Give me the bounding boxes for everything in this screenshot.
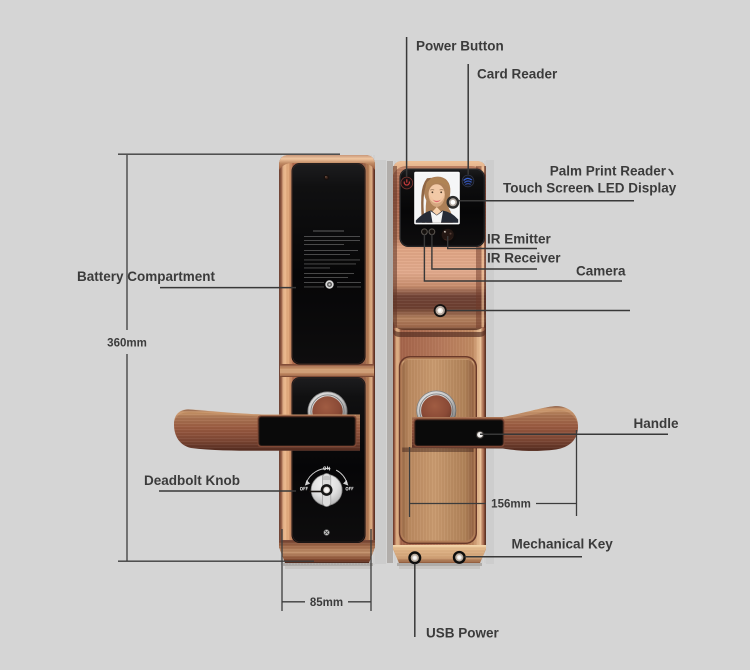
svg-text:Palm Print Reader: Palm Print Reader: [550, 164, 667, 179]
svg-text:85mm: 85mm: [310, 597, 343, 609]
svg-text:156mm: 156mm: [491, 499, 531, 511]
svg-text:LED Display: LED Display: [598, 181, 677, 196]
svg-text:Touch Screen: Touch Screen: [503, 181, 591, 196]
svg-text:Camera: Camera: [576, 264, 626, 279]
svg-text:Power Button: Power Button: [416, 39, 504, 54]
svg-text:IR Emitter: IR Emitter: [487, 232, 552, 247]
svg-text:Handle: Handle: [634, 416, 680, 431]
svg-text:Mechanical Key: Mechanical Key: [512, 537, 614, 552]
svg-text:Deadbolt Knob: Deadbolt Knob: [144, 473, 240, 488]
svg-text:USB Power: USB Power: [426, 626, 500, 641]
svg-text:360mm: 360mm: [107, 338, 147, 350]
svg-text:IR Receiver: IR Receiver: [487, 251, 561, 266]
svg-text:Card Reader: Card Reader: [477, 67, 558, 82]
svg-text:Battery Compartment: Battery Compartment: [77, 269, 216, 284]
